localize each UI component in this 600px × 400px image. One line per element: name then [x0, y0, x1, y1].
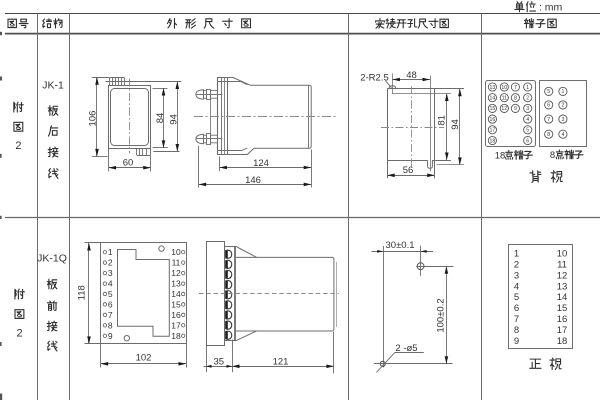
svg-text:14: 14 [557, 292, 568, 303]
svg-text:10: 10 [171, 247, 181, 257]
svg-text:6: 6 [108, 299, 113, 309]
svg-text:1: 1 [561, 89, 564, 95]
svg-text:2: 2 [16, 327, 22, 339]
svg-text:3: 3 [561, 117, 564, 123]
svg-text:12: 12 [501, 106, 507, 112]
svg-text:121: 121 [273, 357, 289, 368]
svg-text:2: 2 [108, 258, 113, 268]
svg-text:2: 2 [561, 103, 564, 109]
svg-text:48: 48 [406, 70, 417, 81]
svg-text:8: 8 [514, 325, 519, 336]
svg-text:13: 13 [490, 85, 496, 91]
svg-text:84: 84 [155, 113, 166, 124]
svg-text:1: 1 [514, 249, 519, 260]
svg-text:4: 4 [108, 279, 113, 289]
svg-text:3: 3 [526, 106, 529, 112]
svg-text:16: 16 [490, 117, 496, 123]
svg-text:7: 7 [108, 310, 113, 320]
svg-text:16: 16 [171, 310, 181, 320]
svg-text:60: 60 [123, 158, 134, 169]
svg-text:9: 9 [514, 106, 517, 112]
svg-text:8: 8 [514, 96, 517, 102]
svg-text:7: 7 [547, 117, 550, 123]
svg-text:mm: mm [545, 2, 563, 14]
svg-text:17: 17 [557, 325, 568, 336]
svg-text:1: 1 [108, 247, 113, 257]
svg-text:102: 102 [136, 353, 152, 364]
svg-text:106: 106 [88, 111, 99, 127]
svg-text:2: 2 [514, 260, 519, 271]
svg-text:18: 18 [490, 138, 496, 144]
svg-text:5: 5 [547, 89, 550, 95]
svg-text:13: 13 [557, 281, 568, 292]
svg-text:8: 8 [550, 150, 555, 161]
svg-text:10: 10 [501, 85, 507, 91]
svg-text:30±0.1: 30±0.1 [386, 240, 415, 251]
svg-text:1: 1 [526, 85, 529, 91]
svg-text:94: 94 [169, 114, 180, 125]
svg-text:11: 11 [557, 260, 567, 271]
svg-text:16: 16 [557, 314, 568, 325]
svg-text:15: 15 [171, 299, 181, 309]
svg-text:14: 14 [490, 96, 496, 102]
svg-text:15: 15 [557, 303, 568, 314]
svg-text:5: 5 [526, 128, 529, 134]
svg-text:56: 56 [403, 165, 414, 176]
svg-text:94: 94 [450, 119, 461, 130]
svg-text:6: 6 [514, 303, 519, 314]
svg-text:5: 5 [514, 292, 519, 303]
svg-text:35: 35 [214, 357, 225, 368]
svg-text:12: 12 [171, 268, 181, 278]
svg-text::: : [539, 2, 542, 13]
svg-text:14: 14 [171, 289, 181, 299]
svg-text:JK-1Q: JK-1Q [37, 253, 67, 265]
svg-text:6: 6 [547, 103, 550, 109]
svg-text:2-R2.5: 2-R2.5 [360, 73, 389, 84]
svg-text:4: 4 [526, 117, 529, 123]
svg-text:18: 18 [495, 150, 506, 161]
svg-text:17: 17 [171, 320, 181, 330]
svg-text:124: 124 [253, 158, 269, 169]
svg-text:100±0.2: 100±0.2 [436, 298, 447, 332]
svg-text:2: 2 [526, 96, 529, 102]
svg-text:15: 15 [490, 106, 496, 112]
svg-text:7: 7 [514, 314, 519, 325]
svg-text:4: 4 [561, 132, 564, 138]
svg-text:JK-1: JK-1 [42, 79, 64, 91]
svg-text:118: 118 [77, 285, 88, 300]
svg-text:81: 81 [436, 115, 447, 126]
svg-text:11: 11 [172, 258, 181, 268]
svg-text:3: 3 [108, 268, 113, 278]
svg-text:18: 18 [557, 336, 568, 347]
svg-text:3: 3 [514, 270, 519, 281]
svg-text:7: 7 [514, 85, 517, 91]
svg-text:9: 9 [108, 331, 113, 341]
svg-text:10: 10 [557, 249, 568, 260]
svg-text:2: 2 [15, 140, 21, 152]
svg-text:4: 4 [514, 281, 519, 292]
svg-text:9: 9 [514, 336, 519, 347]
svg-text:6: 6 [526, 138, 529, 144]
svg-text:5: 5 [108, 289, 113, 299]
svg-text:17: 17 [490, 128, 496, 134]
svg-text:146: 146 [245, 175, 261, 186]
svg-text:8: 8 [547, 132, 550, 138]
svg-text:13: 13 [171, 279, 181, 289]
svg-text:8: 8 [108, 320, 113, 330]
svg-text:18: 18 [171, 331, 181, 341]
svg-text:12: 12 [557, 270, 568, 281]
svg-text:11: 11 [502, 96, 507, 102]
